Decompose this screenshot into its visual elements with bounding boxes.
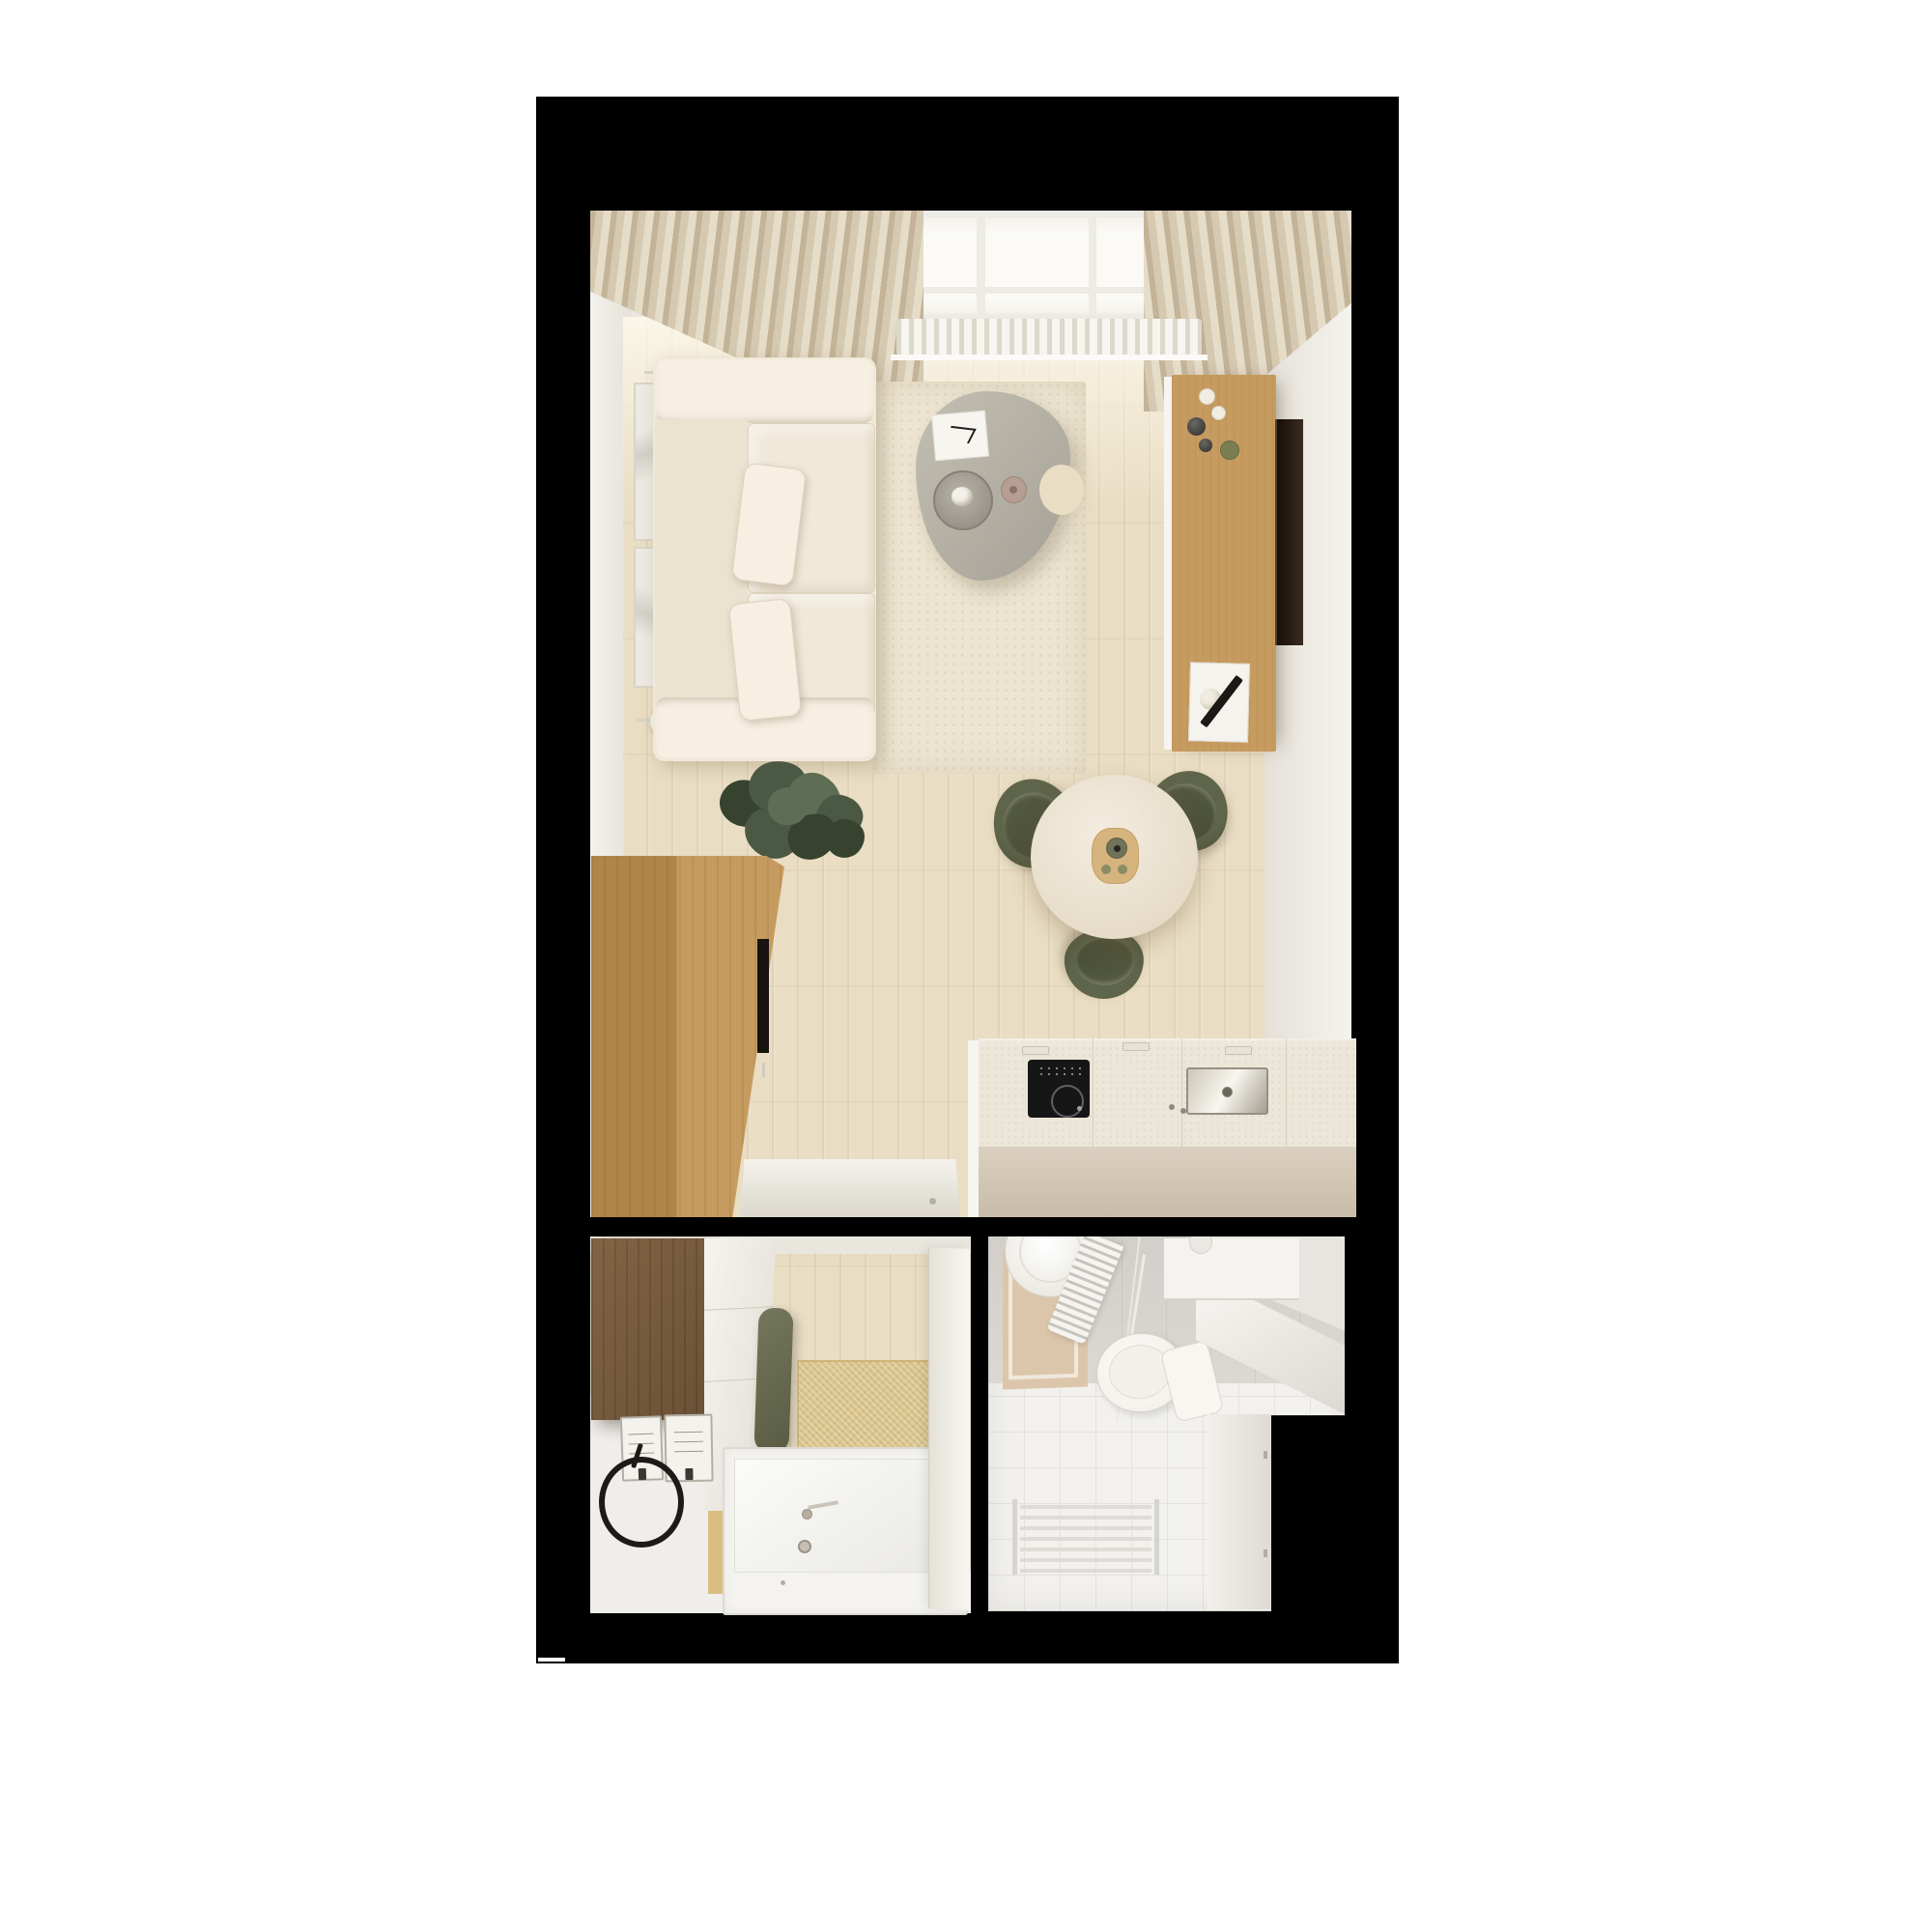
decor-sphere — [1199, 439, 1212, 452]
walnut-wall-cabinet — [591, 1238, 704, 1420]
drawer-handle — [1122, 1042, 1150, 1051]
decor-geo-ball — [1220, 440, 1239, 460]
drawer-handle — [1225, 1046, 1252, 1055]
decor-sphere — [1187, 417, 1206, 436]
cooktop-dot — [1077, 1106, 1082, 1111]
faucet-dot — [1169, 1104, 1175, 1110]
faucet-knob — [802, 1509, 812, 1520]
olive-cushion — [753, 1307, 793, 1453]
decor-book — [931, 411, 989, 462]
plant-leaves — [826, 819, 865, 858]
bathroom-door-leaf — [1207, 1414, 1271, 1609]
tray-fruit — [1101, 865, 1111, 874]
induction-cooktop — [1028, 1060, 1090, 1118]
serving-tray — [1092, 828, 1139, 884]
dining-chair — [1064, 928, 1145, 1001]
decor-tray — [933, 470, 993, 530]
black-hose-loop — [599, 1457, 684, 1548]
faucet-dot — [1180, 1108, 1186, 1114]
decor-paper-ball — [952, 487, 973, 506]
window-mullion — [977, 217, 985, 314]
tray-pot — [1106, 838, 1127, 859]
white-cabinet-box — [1164, 1238, 1299, 1300]
panel-line — [674, 1432, 703, 1434]
wardrobe-slot — [757, 939, 769, 1053]
floor-towel-radiator — [1012, 1499, 1159, 1575]
entrance-door-leaf — [740, 1159, 960, 1217]
sideboard-tray — [1188, 662, 1250, 743]
shower-drain — [798, 1540, 811, 1553]
panel-connector — [685, 1468, 693, 1480]
toilet-seat — [1106, 1342, 1174, 1402]
door-hinge — [1264, 1549, 1267, 1557]
chair-cushion — [1075, 938, 1135, 986]
media-sideboard — [1164, 375, 1276, 752]
room-living — [590, 211, 1351, 1217]
counter-seam — [1181, 1038, 1182, 1147]
under-window-radiator — [896, 319, 1202, 355]
wire-sculpture — [944, 426, 977, 443]
panel-line — [674, 1441, 703, 1443]
decor-cup — [1001, 476, 1027, 503]
chair-shell — [1064, 928, 1145, 1001]
wardrobe-handle — [762, 1063, 765, 1077]
counter-front-face — [979, 1147, 1356, 1217]
artifact-dash — [538, 1658, 565, 1662]
panel-line — [674, 1451, 703, 1453]
window-mullion — [1089, 217, 1096, 314]
radiator-rail — [1154, 1499, 1159, 1575]
room-utility — [590, 1236, 971, 1613]
cooktop-ring — [1051, 1085, 1084, 1118]
radiator-bars — [1020, 1501, 1151, 1573]
tray-fruit — [1118, 865, 1127, 874]
coffee-table — [916, 391, 1086, 584]
sofa-two-seater — [653, 357, 876, 761]
panel-line — [629, 1453, 654, 1455]
tray-dot — [781, 1580, 785, 1585]
wall-tv — [1275, 419, 1303, 645]
radiator-rail — [1012, 1499, 1017, 1575]
pot-hole — [1114, 845, 1121, 852]
throw-pillow — [728, 598, 802, 722]
kitchen-sink — [1186, 1067, 1268, 1115]
counter-seam — [1286, 1038, 1287, 1147]
decor-cup-inner — [1009, 486, 1017, 494]
decor-vase — [1211, 406, 1226, 420]
floor-plan-render — [0, 0, 1932, 1932]
round-dining-table — [1031, 775, 1198, 939]
door-knob — [929, 1198, 936, 1205]
window-sill — [891, 355, 1207, 360]
coffee-table-notch — [1039, 465, 1084, 515]
sink-drain — [1222, 1087, 1233, 1097]
panel-line — [628, 1434, 653, 1435]
sofa-armrest-top — [656, 359, 873, 423]
utility-door-leaf — [928, 1247, 970, 1610]
counter-seam — [1093, 1038, 1094, 1147]
shower-tray-inner — [734, 1459, 958, 1573]
cooktop-dots — [1037, 1065, 1084, 1077]
kitchen-counter — [968, 1038, 1356, 1217]
drawer-handle — [1022, 1046, 1049, 1055]
decor-vase — [1199, 388, 1215, 405]
door-hinge — [1264, 1451, 1267, 1459]
